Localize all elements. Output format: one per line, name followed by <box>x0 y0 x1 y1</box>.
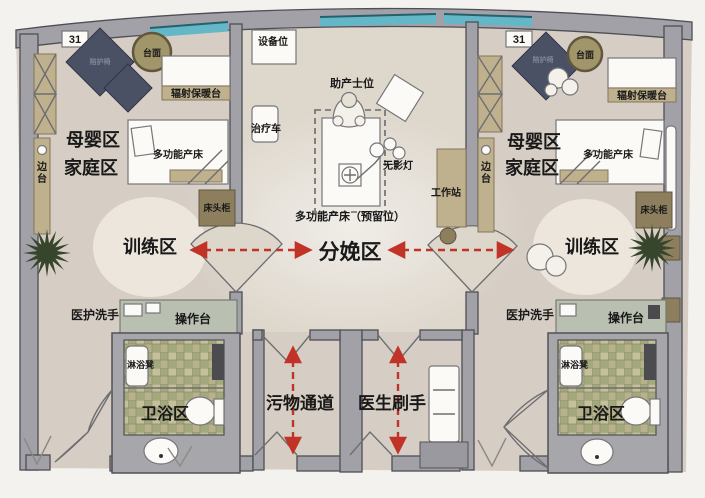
round-table-right-label: 台面 <box>576 49 594 60</box>
warming-table-right-label: 辐射保暖台 <box>617 89 667 102</box>
companion-chair-right-label: 陪护椅 <box>533 55 554 64</box>
zone-bath-right: 卫浴区 <box>577 404 625 423</box>
shower-stool-left-label: 淋浴凳 <box>127 359 155 370</box>
zone-family-right: 家庭区 <box>505 157 559 178</box>
reserved-bed-label: 多功能产床（预留位） <box>295 209 405 223</box>
zone-delivery: 分娩区 <box>319 240 382 264</box>
top-window-center <box>320 19 436 22</box>
room-badge-left-label: 31 <box>69 34 81 46</box>
svg-text:边: 边 <box>36 160 48 173</box>
right-side-table <box>478 138 494 232</box>
zone-bath-left: 卫浴区 <box>141 404 189 423</box>
nightstand-right-label: 床头柜 <box>640 204 667 215</box>
room-badge-right-label: 31 <box>513 34 525 46</box>
counter-right-label: 操作台 <box>608 310 644 325</box>
zone-mother-left: 母婴区 <box>66 130 120 150</box>
right-wardrobe <box>478 56 502 132</box>
instrument-table <box>322 118 380 206</box>
counter-left-label: 操作台 <box>175 311 211 326</box>
zone-doctor-scrub: 医生刷手 <box>358 393 426 413</box>
nightstand-left-label: 床头柜 <box>203 202 230 213</box>
plant-left <box>23 229 71 277</box>
floor-plan: 31 31 陪护椅 陪护椅 台面 台面 辐射保暖台 辐射保暖台 母婴区 家庭区 … <box>0 0 705 498</box>
delivery-bed-left-label: 多功能产床 <box>153 148 204 161</box>
zone-training-left: 训练区 <box>123 236 177 257</box>
midwife-position-label: 助产士位 <box>330 76 374 90</box>
companion-chair-left-label: 陪护椅 <box>90 57 111 66</box>
shower-stool-right-label: 淋浴凳 <box>561 359 589 370</box>
round-table-left-label: 台面 <box>143 47 161 58</box>
delivery-bed-right-label: 多功能产床 <box>583 148 634 161</box>
warming-table-left-label: 辐射保暖台 <box>171 87 221 100</box>
svg-text:台: 台 <box>37 172 47 185</box>
surgical-lamp-label: 无影灯 <box>382 159 413 172</box>
top-window-right <box>444 19 532 22</box>
zone-waste-corridor: 污物通道 <box>266 393 334 413</box>
side-table-left-label: 边 台 <box>36 160 48 185</box>
left-side-table <box>34 138 50 234</box>
left-wardrobe <box>34 54 56 134</box>
zone-training-right: 训练区 <box>565 236 619 257</box>
staff-wash-left-label: 医护洗手 <box>71 307 119 322</box>
side-table-right-label: 边 台 <box>480 160 492 185</box>
floor-plan-canvas: 31 31 陪护椅 陪护椅 台面 台面 辐射保暖台 辐射保暖台 母婴区 家庭区 … <box>0 0 705 498</box>
bathroom-right <box>548 333 668 473</box>
zone-mother-right: 母婴区 <box>507 132 561 152</box>
bathroom-left <box>112 333 240 473</box>
svg-text:边: 边 <box>480 160 492 173</box>
workstation-label: 工作站 <box>431 186 461 199</box>
equipment-spot-label: 设备位 <box>258 35 288 48</box>
treatment-cart-label: 治疗车 <box>251 122 281 135</box>
svg-text:台: 台 <box>481 172 491 185</box>
plant-right <box>628 224 676 272</box>
staff-wash-right-label: 医护洗手 <box>506 307 554 322</box>
zone-family-left: 家庭区 <box>64 157 118 178</box>
